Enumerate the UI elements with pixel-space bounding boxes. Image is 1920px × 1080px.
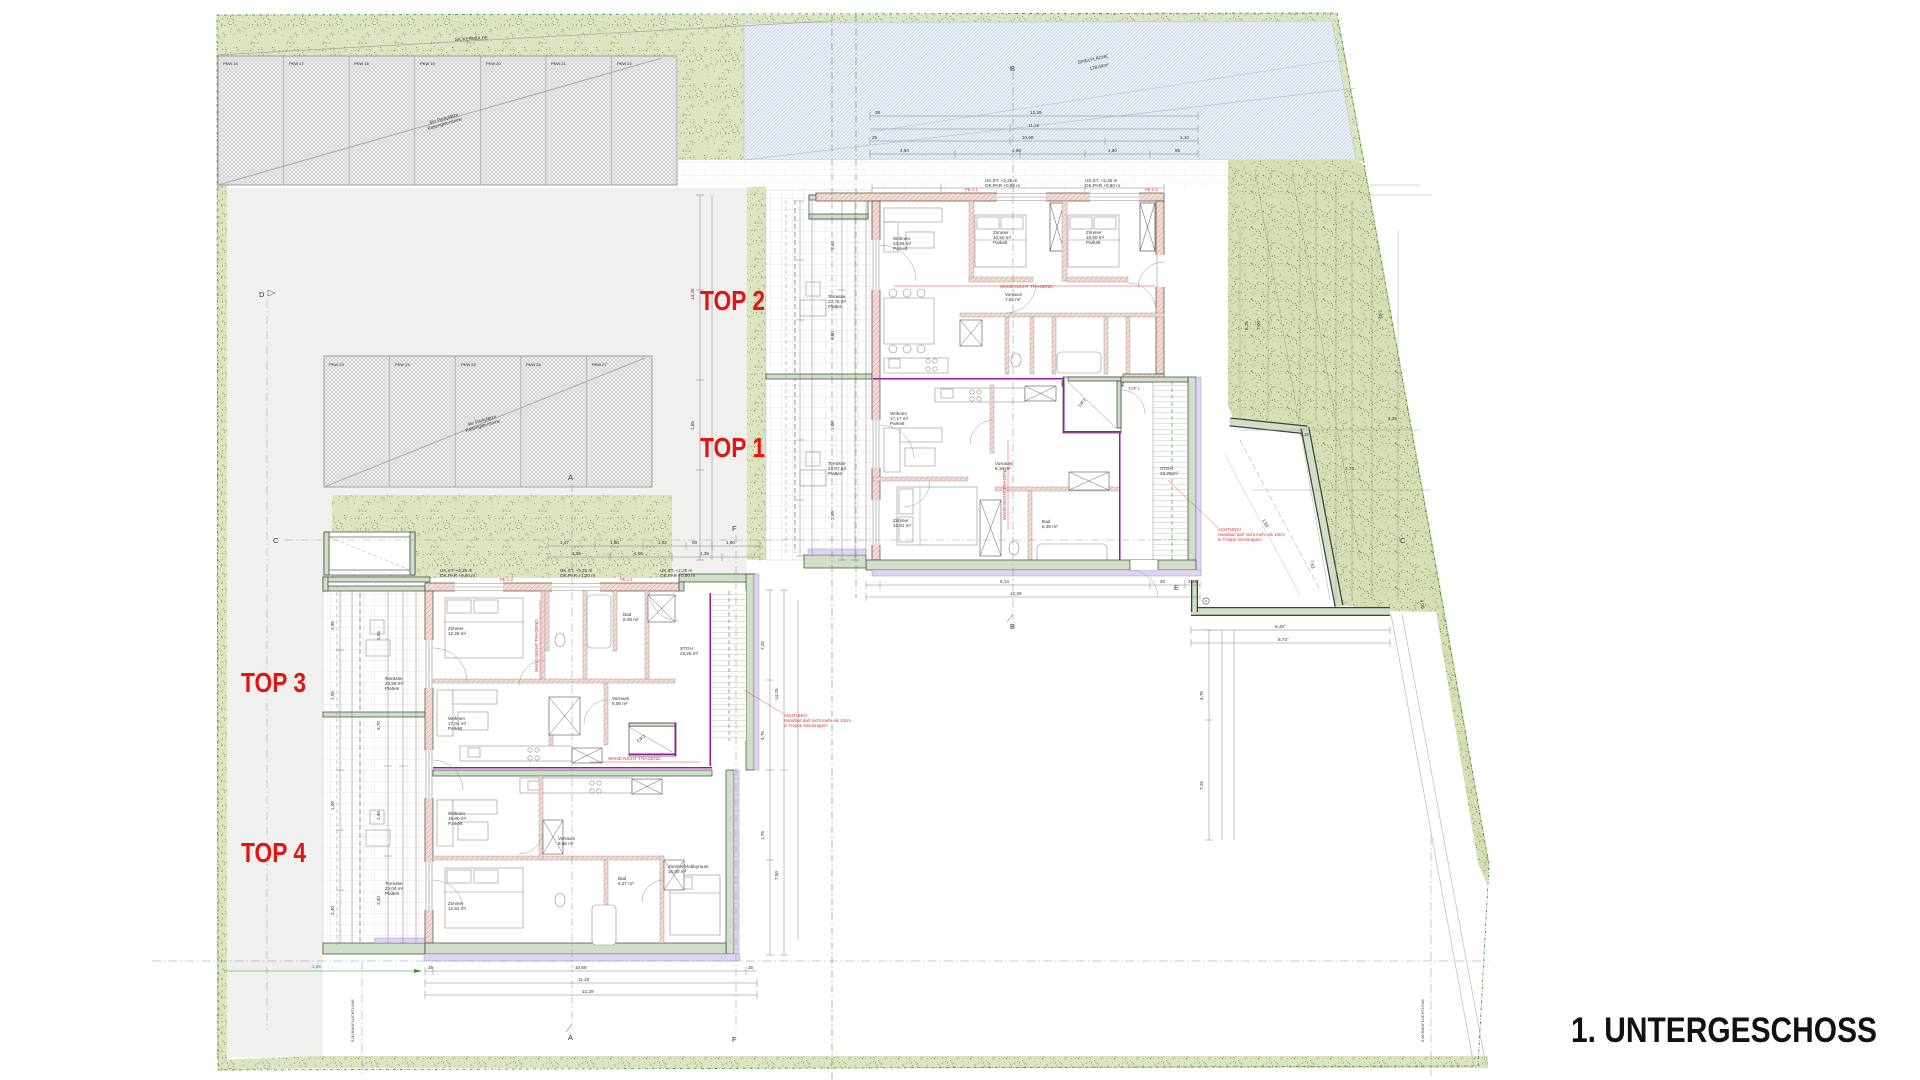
svg-text:23,25 m²: 23,25 m² [680, 651, 699, 656]
svg-text:Platten: Platten [385, 686, 400, 691]
svg-text:1,80: 1,80 [726, 540, 735, 545]
svg-text:PKW 18: PKW 18 [354, 61, 369, 66]
svg-text:1,65: 1,65 [690, 421, 695, 430]
svg-text:Platten: Platten [828, 471, 843, 476]
svg-text:2,73: 2,73 [1345, 466, 1354, 471]
svg-text:2,45: 2,45 [1188, 579, 1197, 584]
svg-text:14,25: 14,25 [774, 688, 779, 700]
svg-text:D: D [259, 290, 265, 299]
svg-text:7,00: 7,00 [774, 871, 779, 880]
svg-text:WAND NICHT TRAGEND: WAND NICHT TRAGEND [534, 619, 539, 672]
svg-text:PE 1-1: PE 1-1 [620, 577, 633, 582]
svg-text:5,73°: 5,73° [1278, 637, 1289, 642]
svg-text:Parkett: Parkett [890, 421, 905, 426]
svg-text:25: 25 [428, 965, 434, 970]
svg-text:in Treppe hineinragen!: in Treppe hineinragen! [1218, 537, 1262, 542]
svg-text:25: 25 [872, 135, 878, 140]
svg-text:2,40: 2,40 [376, 896, 381, 905]
svg-text:1,10: 1,10 [1180, 135, 1189, 140]
svg-text:F: F [732, 1035, 737, 1044]
svg-text:Parkett: Parkett [448, 821, 463, 826]
svg-text:12,29: 12,29 [1010, 591, 1022, 596]
svg-text:OK.PAR +0,90 m: OK.PAR +0,90 m [985, 183, 1020, 188]
svg-text:in Treppe hineinragen!: in Treppe hineinragen! [784, 723, 828, 728]
svg-text:90: 90 [692, 540, 698, 545]
svg-text:1,00: 1,00 [330, 801, 335, 810]
svg-text:E: E [1174, 583, 1179, 592]
svg-text:Platten: Platten [385, 891, 400, 896]
svg-text:PKW 23: PKW 23 [329, 362, 344, 367]
svg-text:5,00 BAUFLUCHTLINIE: 5,00 BAUFLUCHTLINIE [1420, 999, 1425, 1042]
svg-text:PKW 25: PKW 25 [461, 362, 476, 367]
svg-text:2,40: 2,40 [376, 811, 381, 820]
svg-text:2,40: 2,40 [330, 906, 335, 915]
svg-text:4,10: 4,10 [1300, 432, 1309, 437]
svg-text:PKW 27: PKW 27 [592, 362, 607, 367]
svg-text:PKW 26: PKW 26 [526, 362, 541, 367]
svg-text:4,75: 4,75 [1199, 691, 1204, 700]
svg-text:20: 20 [1160, 579, 1166, 584]
svg-text:1,00: 1,00 [830, 421, 835, 430]
svg-text:8,08 m²: 8,08 m² [623, 617, 639, 622]
svg-text:1,47: 1,47 [560, 540, 569, 545]
svg-text:3,70: 3,70 [376, 721, 381, 730]
svg-text:1,35: 1,35 [1388, 416, 1397, 421]
svg-text:8,16 m²: 8,16 m² [995, 466, 1011, 471]
svg-text:1,05: 1,05 [634, 551, 643, 556]
svg-text:1,35: 1,35 [700, 551, 709, 556]
svg-text:4,75: 4,75 [760, 731, 765, 740]
svg-text:10,69: 10,69 [1022, 135, 1034, 140]
svg-text:38: 38 [875, 110, 881, 115]
svg-text:9,14: 9,14 [1000, 579, 1009, 584]
svg-text:WAND NICHT TRAGEND: WAND NICHT TRAGEND [1000, 284, 1053, 289]
svg-text:2,95: 2,95 [330, 621, 335, 630]
svg-text:95: 95 [1175, 148, 1181, 153]
svg-text:OK.PAR +0,90 m: OK.PAR +0,90 m [1085, 183, 1120, 188]
svg-text:11,19: 11,19 [578, 977, 590, 982]
svg-text:WAND NICHT TRAGEND: WAND NICHT TRAGEND [608, 756, 661, 761]
svg-text:8,06 m²: 8,06 m² [612, 701, 628, 706]
svg-text:2,95: 2,95 [830, 511, 835, 520]
svg-text:TOP 1: TOP 1 [700, 432, 765, 463]
svg-text:6,75: 6,75 [1244, 321, 1249, 330]
svg-text:Platten: Platten [828, 304, 843, 309]
svg-text:12,91 m²: 12,91 m² [893, 523, 912, 528]
svg-text:1,80: 1,80 [1108, 148, 1117, 153]
svg-text:4,84: 4,84 [900, 148, 909, 153]
svg-text:PE 1-1: PE 1-1 [965, 187, 978, 192]
svg-text:7,25: 7,25 [760, 641, 765, 650]
svg-text:PE 1-3: PE 1-3 [500, 577, 513, 582]
svg-text:12,29: 12,29 [1030, 110, 1042, 115]
svg-text:PKW 24: PKW 24 [395, 362, 410, 367]
svg-text:TOP 1: TOP 1 [1128, 386, 1141, 391]
svg-text:1. UNTERGESCHOSS: 1. UNTERGESCHOSS [1571, 1011, 1877, 1050]
svg-text:5,48°: 5,48° [1275, 624, 1286, 629]
svg-text:1,95: 1,95 [312, 964, 321, 969]
svg-text:PKW 20: PKW 20 [486, 61, 501, 66]
svg-text:OK.PAR +0,90 m: OK.PAR +0,90 m [660, 573, 695, 578]
svg-text:WAND NICHT TRAGEND: WAND NICHT TRAGEND [1002, 467, 1007, 520]
svg-text:1,75: 1,75 [760, 831, 765, 840]
svg-text:25: 25 [748, 965, 754, 970]
svg-text:14,25: 14,25 [690, 288, 695, 300]
svg-text:5,00 BAUFLUCHTLINIE: 5,00 BAUFLUCHTLINIE [350, 999, 355, 1042]
svg-text:12,28 m²: 12,28 m² [448, 631, 467, 636]
svg-text:TOP 3: TOP 3 [241, 667, 306, 698]
svg-text:PKW 22: PKW 22 [617, 61, 632, 66]
svg-text:TOP 4: TOP 4 [241, 837, 306, 868]
svg-text:A: A [568, 473, 573, 482]
svg-text:Parkett: Parkett [448, 726, 463, 731]
svg-text:7,25: 7,25 [1199, 781, 1204, 790]
svg-text:12,29: 12,29 [582, 989, 594, 994]
svg-text:8,38 m²: 8,38 m² [1042, 524, 1058, 529]
svg-text:B: B [1010, 622, 1015, 631]
svg-text:F: F [732, 524, 737, 533]
svg-text:15,60 m²: 15,60 m² [668, 869, 687, 874]
svg-text:2,40: 2,40 [830, 241, 835, 250]
svg-text:PKW 19: PKW 19 [420, 61, 435, 66]
svg-text:12,91 m²: 12,91 m² [448, 906, 467, 911]
svg-text:OK.PAR +1,20 m: OK.PAR +1,20 m [560, 573, 595, 578]
svg-text:1,00: 1,00 [330, 691, 335, 700]
svg-text:1,62: 1,62 [658, 540, 667, 545]
svg-text:Parkett: Parkett [1086, 240, 1101, 245]
svg-text:6,80: 6,80 [830, 331, 835, 340]
svg-text:C: C [273, 536, 279, 545]
svg-text:1,80: 1,80 [1012, 148, 1021, 153]
svg-text:Parkett: Parkett [993, 240, 1008, 245]
svg-text:10,69: 10,69 [575, 965, 587, 970]
svg-text:PKW 17: PKW 17 [289, 61, 304, 66]
svg-text:8,65 m²: 8,65 m² [558, 841, 574, 846]
svg-text:PE 1-1: PE 1-1 [1145, 187, 1158, 192]
svg-text:B: B [1010, 64, 1015, 73]
svg-text:PKW 16: PKW 16 [223, 61, 238, 66]
svg-text:23,25 m²: 23,25 m² [1160, 471, 1179, 476]
svg-text:OK.PAR +0,90 m: OK.PAR +0,90 m [440, 573, 475, 578]
svg-text:1,05: 1,05 [572, 551, 581, 556]
svg-text:PKW 21: PKW 21 [551, 61, 566, 66]
svg-text:7,00: 7,00 [1256, 321, 1261, 330]
svg-text:TOP 2: TOP 2 [700, 285, 765, 316]
svg-text:1,80: 1,80 [610, 540, 619, 545]
svg-text:C: C [1400, 536, 1406, 545]
svg-text:A: A [568, 1033, 573, 1042]
svg-text:2,95: 2,95 [376, 631, 381, 640]
svg-text:6,27 m²: 6,27 m² [618, 881, 634, 886]
